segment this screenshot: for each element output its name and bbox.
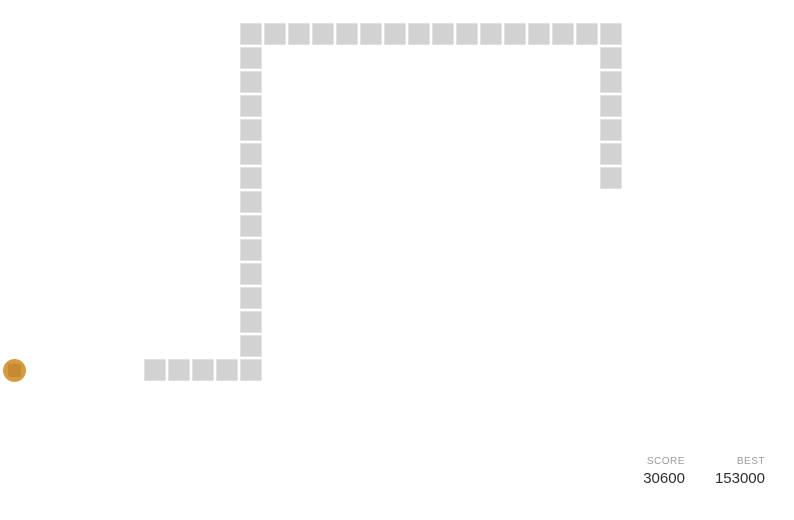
snake-segment [312,23,334,45]
snake-segment [336,23,358,45]
snake-segment [240,191,262,213]
snake-segment [384,23,406,45]
snake-segment [552,23,574,45]
snake-segment [240,263,262,285]
snake-head [144,359,166,381]
snake-segment [600,119,622,141]
snake-segment [240,71,262,93]
snake-segment [480,23,502,45]
snake-segment [600,47,622,69]
game-board[interactable] [0,0,794,520]
snake-segment [240,47,262,69]
snake-segment [240,143,262,165]
snake-segment [408,23,430,45]
snake-segment [240,311,262,333]
best-panel: BEST 153000 [715,456,765,487]
snake-segment [240,239,262,261]
scoreboard: SCORE 30600 BEST 153000 [643,456,765,487]
snake-segment [240,335,262,357]
snake-segment [600,143,622,165]
snake-segment [288,23,310,45]
snake-segment [168,359,190,381]
snake-segment [240,215,262,237]
snake-segment [240,167,262,189]
game-stage: SCORE 30600 BEST 153000 [0,0,794,520]
snake-segment [192,359,214,381]
snake-segment [240,95,262,117]
snake-segment [528,23,550,45]
snake-segment [360,23,382,45]
snake-segment [600,167,622,189]
score-value: 30600 [643,471,685,487]
snake-segment [240,23,262,45]
snake-segment [240,359,262,381]
snake-segment [456,23,478,45]
snake-segment [264,23,286,45]
score-label: SCORE [643,456,685,468]
snake-segment [432,23,454,45]
snake-segment [600,23,622,45]
snake-segment [576,23,598,45]
best-value: 153000 [715,471,765,487]
score-panel: SCORE 30600 [643,456,685,487]
food-inner [8,364,21,377]
snake-segment [240,119,262,141]
snake-segment [216,359,238,381]
snake-segment [240,287,262,309]
best-label: BEST [715,456,765,468]
snake-segment [504,23,526,45]
snake-segment [600,71,622,93]
snake-segment [600,95,622,117]
food [3,359,26,382]
